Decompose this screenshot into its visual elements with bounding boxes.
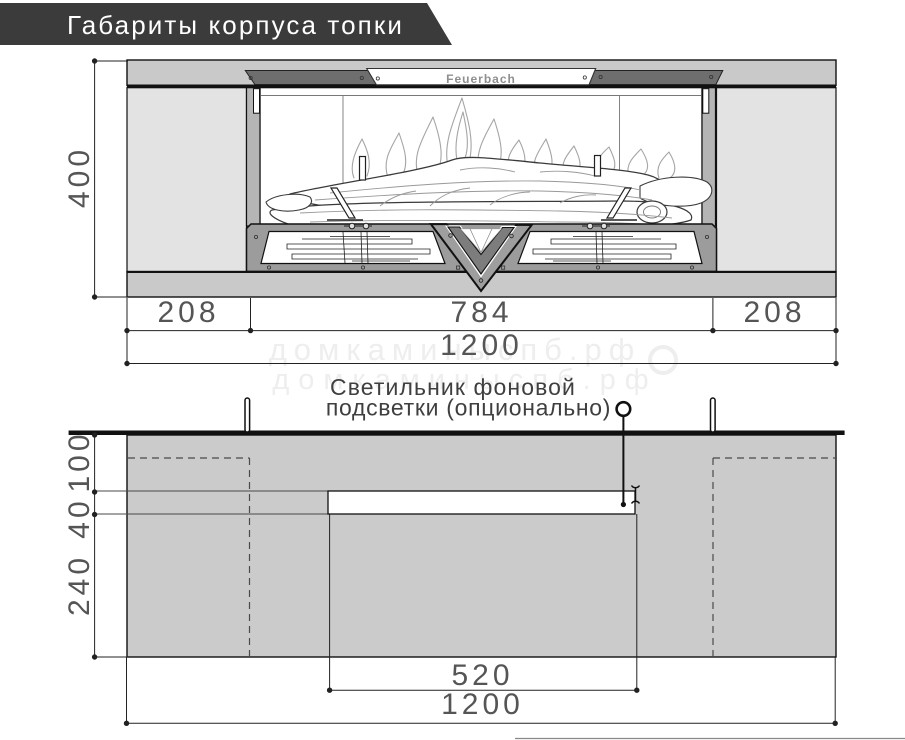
svg-text:100: 100 bbox=[63, 430, 96, 492]
svg-text:208: 208 bbox=[157, 296, 219, 329]
svg-text:1200: 1200 bbox=[441, 688, 524, 721]
svg-text:подсветки (опционально): подсветки (опционально) bbox=[326, 395, 611, 421]
svg-text:40: 40 bbox=[63, 497, 96, 538]
svg-text:784: 784 bbox=[450, 296, 512, 329]
svg-text:400: 400 bbox=[63, 146, 96, 208]
svg-text:Feuerbach: Feuerbach bbox=[446, 72, 516, 86]
svg-text:1200: 1200 bbox=[440, 329, 523, 362]
svg-text:240: 240 bbox=[63, 554, 96, 616]
svg-text:208: 208 bbox=[743, 296, 805, 329]
svg-text:Габариты корпуса топки: Габариты корпуса топки bbox=[67, 10, 404, 40]
